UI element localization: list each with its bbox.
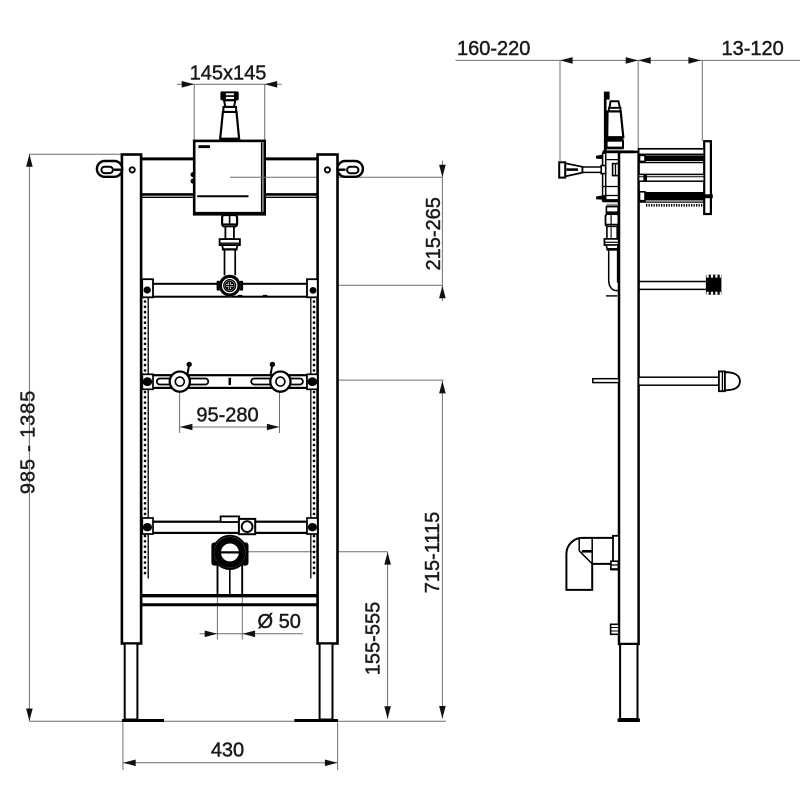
- svg-text:Ø 50: Ø 50: [258, 611, 301, 633]
- svg-text:145x145: 145x145: [190, 63, 267, 85]
- svg-text:985 - 1385: 985 - 1385: [18, 390, 40, 494]
- svg-text:715-1115: 715-1115: [422, 512, 444, 594]
- svg-text:155-555: 155-555: [363, 602, 385, 675]
- svg-text:13-120: 13-120: [722, 38, 784, 60]
- svg-text:95-280: 95-280: [196, 405, 258, 427]
- svg-text:215-265: 215-265: [423, 197, 445, 270]
- svg-text:160-220: 160-220: [457, 38, 530, 60]
- svg-text:430: 430: [211, 740, 244, 762]
